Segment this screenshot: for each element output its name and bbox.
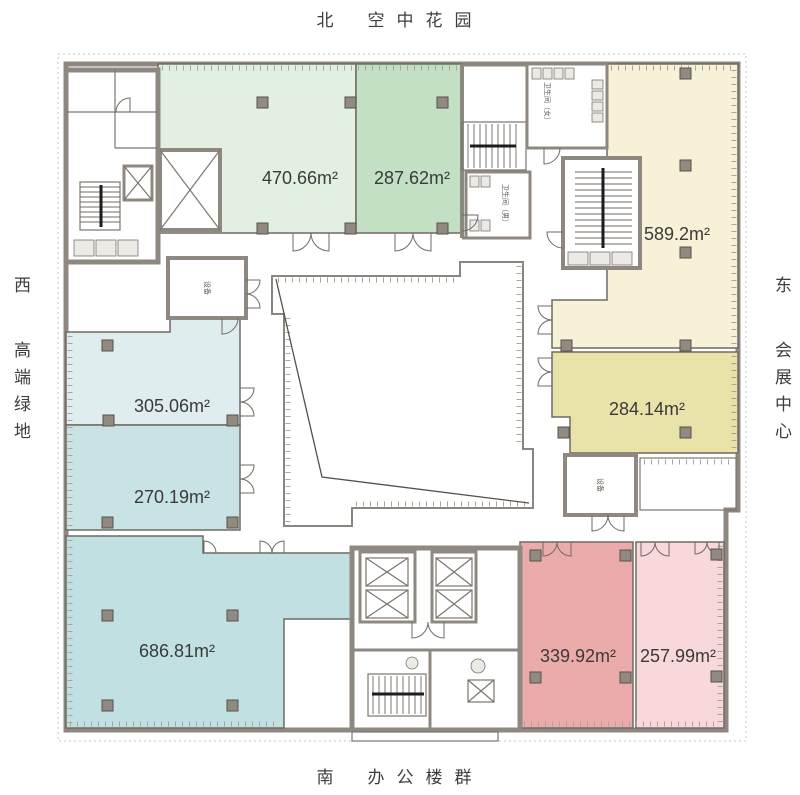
room-305-area: 305.06m² [134,396,210,416]
wc-fixture [471,659,485,673]
south-porch [352,732,498,741]
room-686-area: 686.81m² [139,641,215,661]
core-south [352,548,520,730]
shaft-row-nw [74,240,138,256]
elevator-small-nw [124,166,152,200]
restroom-male: 卫生间（男） [466,172,530,238]
east-corridor [640,458,736,510]
equipment-room-east-label: 设备 [596,478,605,492]
room-589-area: 589.2m² [644,224,710,244]
elevator-main-nw [160,150,220,230]
room-257 [636,542,724,728]
room-257-area: 257.99m² [640,646,716,666]
room-270-area: 270.19m² [134,487,210,507]
restroom-female-label: 卫生间（女） [543,82,552,124]
room-470-area: 470.66m² [262,168,338,188]
floor-plan-drawing: 卫生间（女） 卫生间（男） [0,0,800,795]
equipment-room-east: 设备 [565,455,636,531]
restroom-female: 卫生间（女） [527,64,607,164]
wc-fixture [406,657,418,669]
room-339 [520,542,633,728]
room-287-area: 287.62m² [374,168,450,188]
core-east-stairs [547,158,640,268]
atrium-outline [272,262,533,526]
room-686 [66,536,352,728]
room-284-area: 284.14m² [609,399,685,419]
floor-plan-page: 北 空中花园 南 办公楼群 西 高端绿地 东 会展中心 [0,0,800,795]
equipment-room-west-label: 设备 [203,281,212,295]
central-atrium [272,262,533,526]
restroom-male-label: 卫生间（男） [501,184,510,226]
stairs-north [462,122,526,170]
room-270 [66,425,240,530]
room-287 [356,64,462,233]
room-339-area: 339.92m² [540,646,616,666]
